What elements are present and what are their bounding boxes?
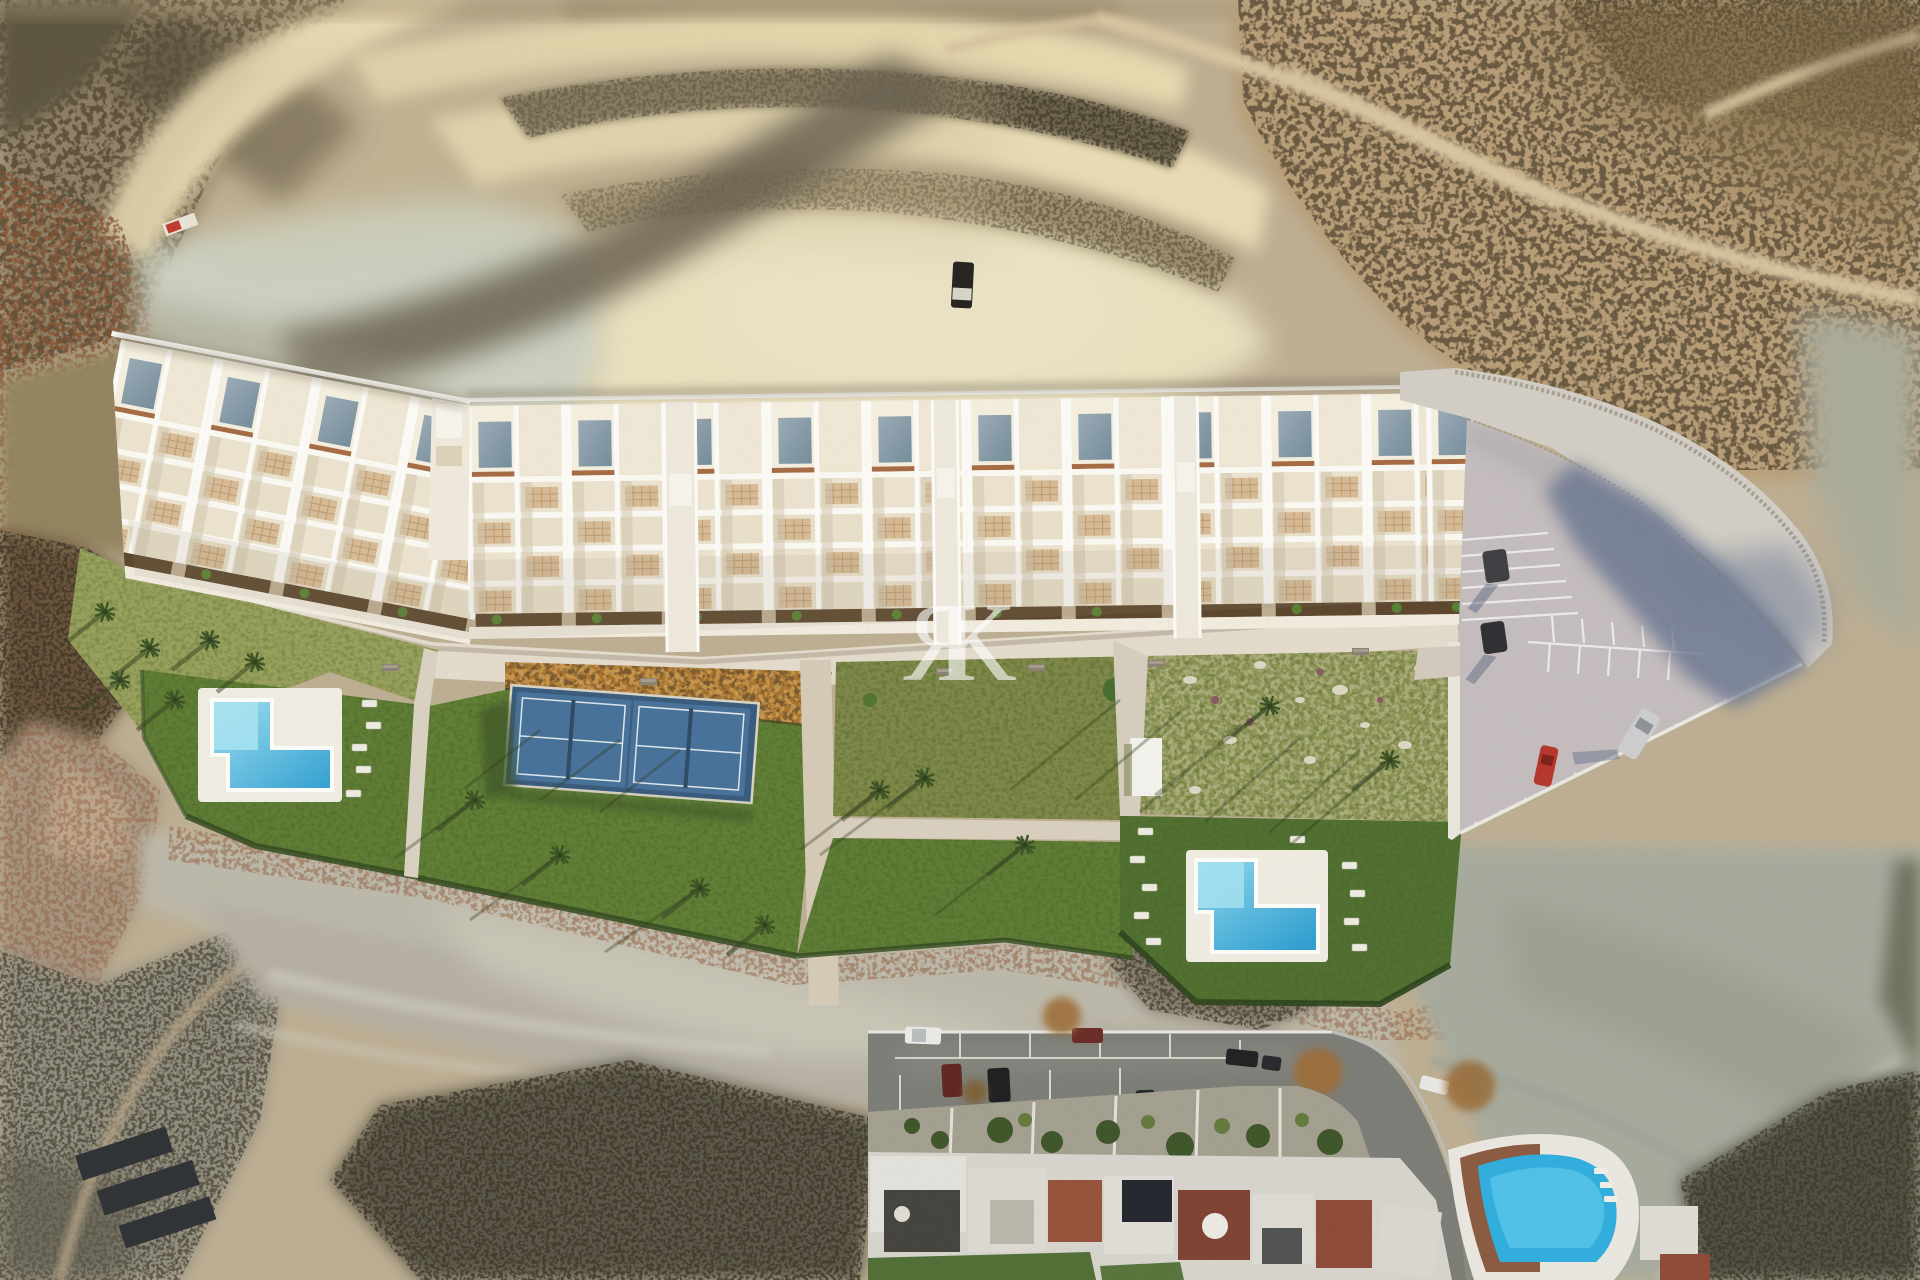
- svg-text:K: K: [936, 581, 1017, 705]
